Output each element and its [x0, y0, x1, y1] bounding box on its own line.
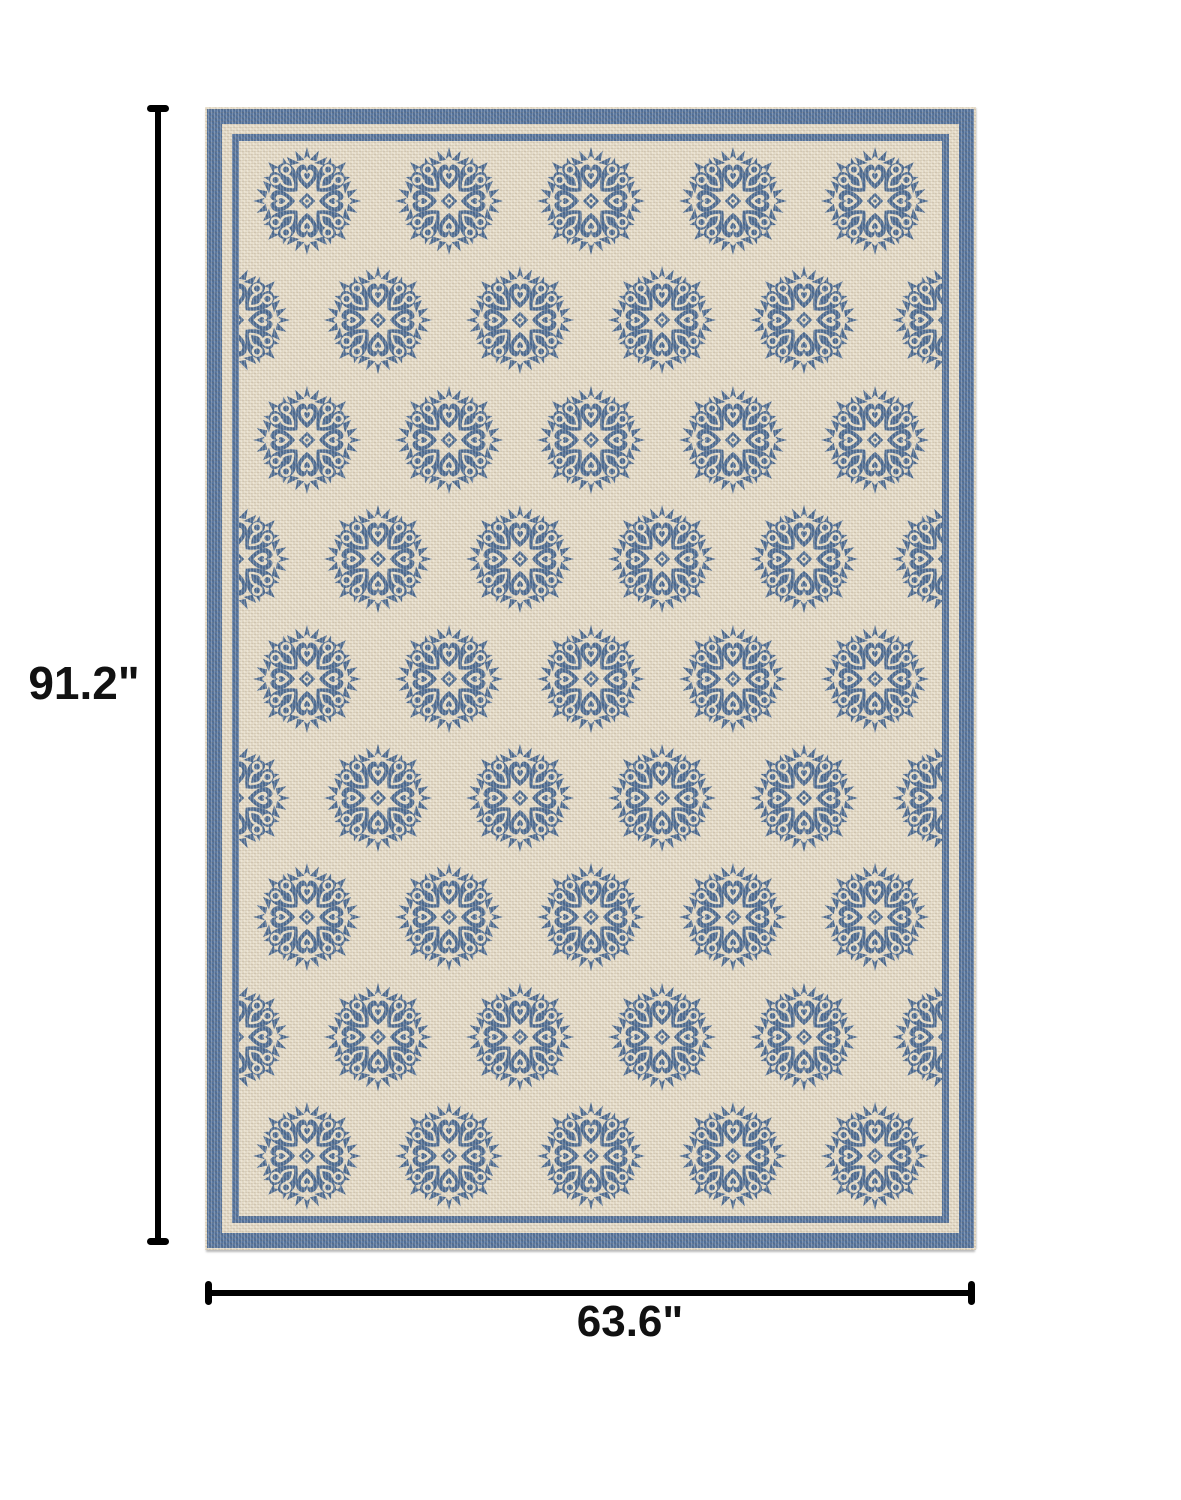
- rug-medallion: [819, 1101, 931, 1211]
- rug-medallion: [239, 504, 292, 614]
- rug-medallion: [464, 743, 576, 853]
- rug-medallion: [890, 504, 943, 614]
- rug-medallion: [606, 504, 718, 614]
- height-dimension-line: [147, 105, 169, 1245]
- rug-medallion: [606, 982, 718, 1092]
- rug-medallion: [677, 1101, 789, 1211]
- rug-medallion: [748, 982, 860, 1092]
- rug-medallion: [748, 265, 860, 375]
- rug-medallion: [393, 1101, 505, 1211]
- rug-medallion: [393, 862, 505, 972]
- rug-medallion: [322, 504, 434, 614]
- rug-medallion: [464, 265, 576, 375]
- rug-medallion: [239, 743, 292, 853]
- rug-field: [239, 141, 942, 1216]
- width-dimension-bar: [205, 1290, 975, 1296]
- rug-medallion: [322, 265, 434, 375]
- rug-medallion: [535, 146, 647, 256]
- rug-medallion: [819, 385, 931, 495]
- rug-medallion: [251, 624, 363, 734]
- rug-medallion: [606, 265, 718, 375]
- rug-medallion: [819, 624, 931, 734]
- rug-medallion: [239, 982, 292, 1092]
- rug-medallion: [677, 862, 789, 972]
- rug-medallion: [819, 146, 931, 256]
- rug-medallion: [251, 862, 363, 972]
- rug-medallion: [890, 982, 943, 1092]
- rug-medallion: [393, 146, 505, 256]
- rug-medallion: [606, 743, 718, 853]
- rug-medallion: [535, 862, 647, 972]
- rug-medallion: [251, 1101, 363, 1211]
- rug-medallion: [251, 146, 363, 256]
- rug-medallion: [251, 385, 363, 495]
- rug-medallion: [535, 385, 647, 495]
- rug-medallion: [748, 504, 860, 614]
- rug-medallion: [393, 385, 505, 495]
- height-dimension-label: 91.2": [18, 656, 150, 710]
- rug-medallion: [322, 982, 434, 1092]
- rug-medallion: [464, 982, 576, 1092]
- rug-image: [205, 107, 976, 1250]
- rug-medallion: [239, 265, 292, 375]
- rug-medallion: [677, 385, 789, 495]
- rug-medallion: [464, 504, 576, 614]
- rug-medallion: [677, 146, 789, 256]
- rug-medallion: [677, 624, 789, 734]
- rug-medallion: [890, 743, 943, 853]
- rug-medallion: [535, 624, 647, 734]
- rug-medallion: [535, 1101, 647, 1211]
- rug-medallion: [819, 862, 931, 972]
- product-dimension-image: 91.2" 63.6": [0, 0, 1181, 1500]
- width-dimension-label: 63.6": [530, 1297, 730, 1347]
- rug-medallion: [322, 743, 434, 853]
- rug-medallion: [393, 624, 505, 734]
- rug-medallion: [890, 265, 943, 375]
- rug-medallion: [748, 743, 860, 853]
- height-dimension-bar: [155, 105, 161, 1245]
